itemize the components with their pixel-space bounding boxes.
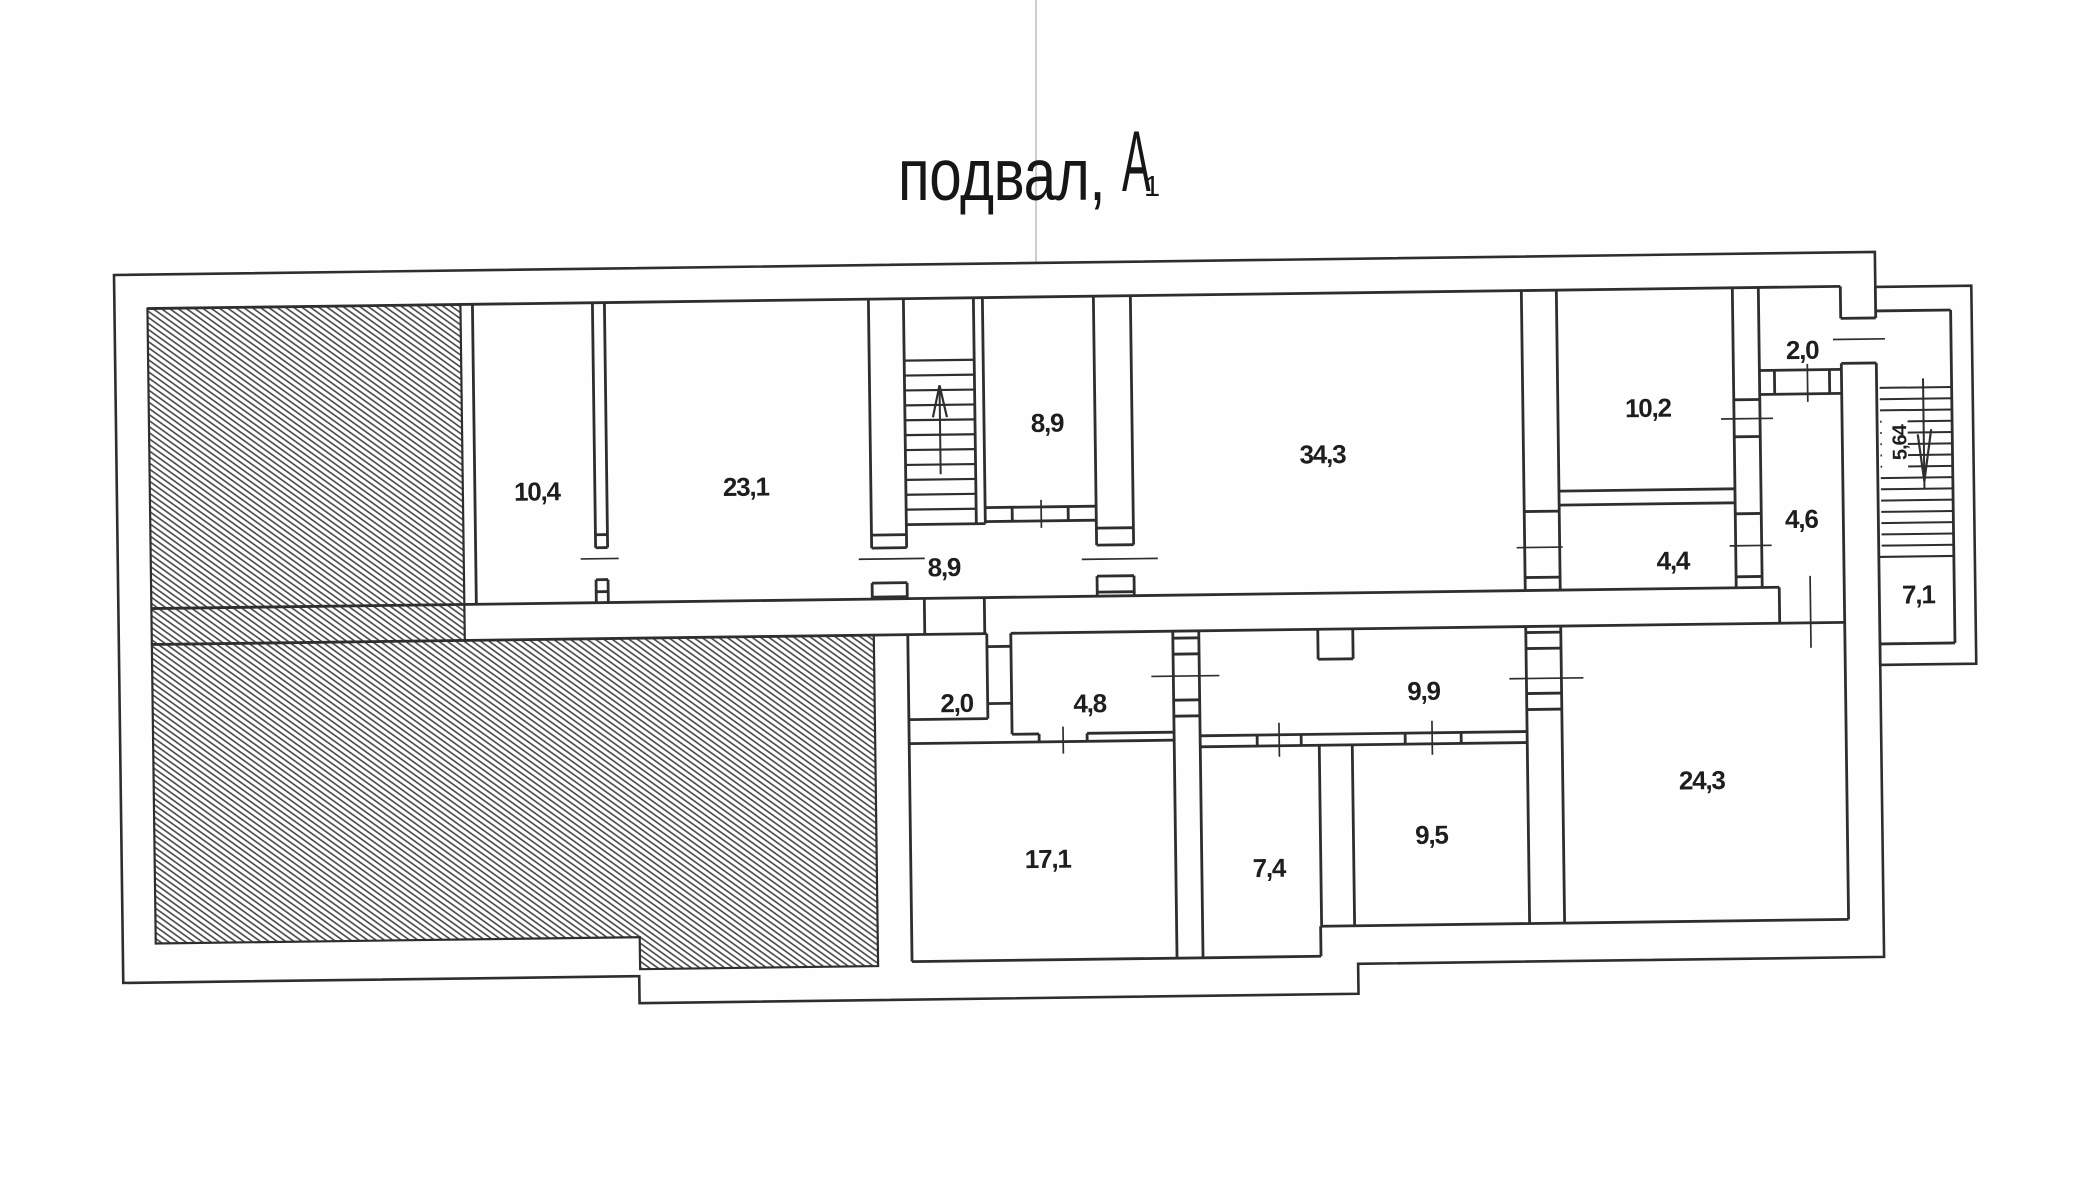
svg-text:34,3: 34,3 [1299, 439, 1346, 470]
svg-text:7,1: 7,1 [1902, 579, 1936, 609]
svg-text:10,2: 10,2 [1625, 393, 1672, 424]
svg-text:24,3: 24,3 [1679, 765, 1726, 796]
svg-text:2,0: 2,0 [940, 688, 974, 718]
svg-text:9,5: 9,5 [1415, 820, 1449, 850]
svg-text:9,9: 9,9 [1407, 676, 1441, 706]
svg-text:10,4: 10,4 [514, 476, 562, 507]
svg-text:4,8: 4,8 [1073, 688, 1107, 718]
svg-text:4,6: 4,6 [1785, 504, 1819, 534]
svg-text:4,4: 4,4 [1656, 545, 1691, 575]
svg-text:8,9: 8,9 [927, 552, 961, 582]
svg-text:2,0: 2,0 [1786, 335, 1820, 365]
svg-text:подвал,: подвал, [898, 135, 1105, 217]
svg-text:17,1: 17,1 [1025, 844, 1072, 875]
svg-text:1: 1 [1144, 171, 1160, 203]
svg-text:7,4: 7,4 [1252, 853, 1287, 883]
svg-text:5,64: 5,64 [1889, 423, 1911, 460]
svg-text:8,9: 8,9 [1031, 408, 1065, 438]
svg-text:23,1: 23,1 [723, 471, 770, 502]
